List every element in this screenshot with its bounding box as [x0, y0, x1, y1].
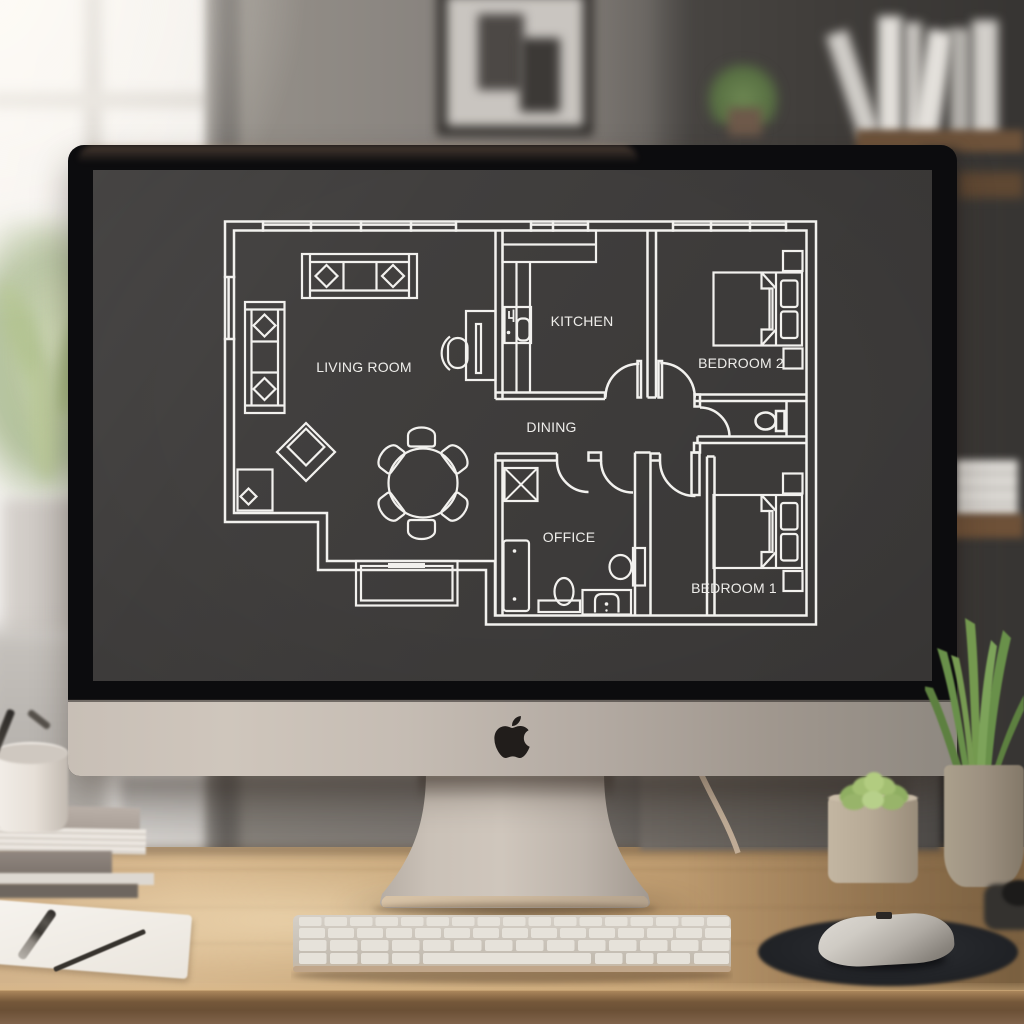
svg-text:BEDROOM 2: BEDROOM 2	[698, 355, 784, 371]
svg-text:DINING: DINING	[526, 419, 576, 435]
svg-text:OFFICE: OFFICE	[543, 529, 596, 545]
svg-text:KITCHEN: KITCHEN	[551, 313, 614, 329]
svg-text:LIVING ROOM: LIVING ROOM	[316, 359, 412, 375]
svg-text:BEDROOM 1: BEDROOM 1	[691, 580, 777, 596]
